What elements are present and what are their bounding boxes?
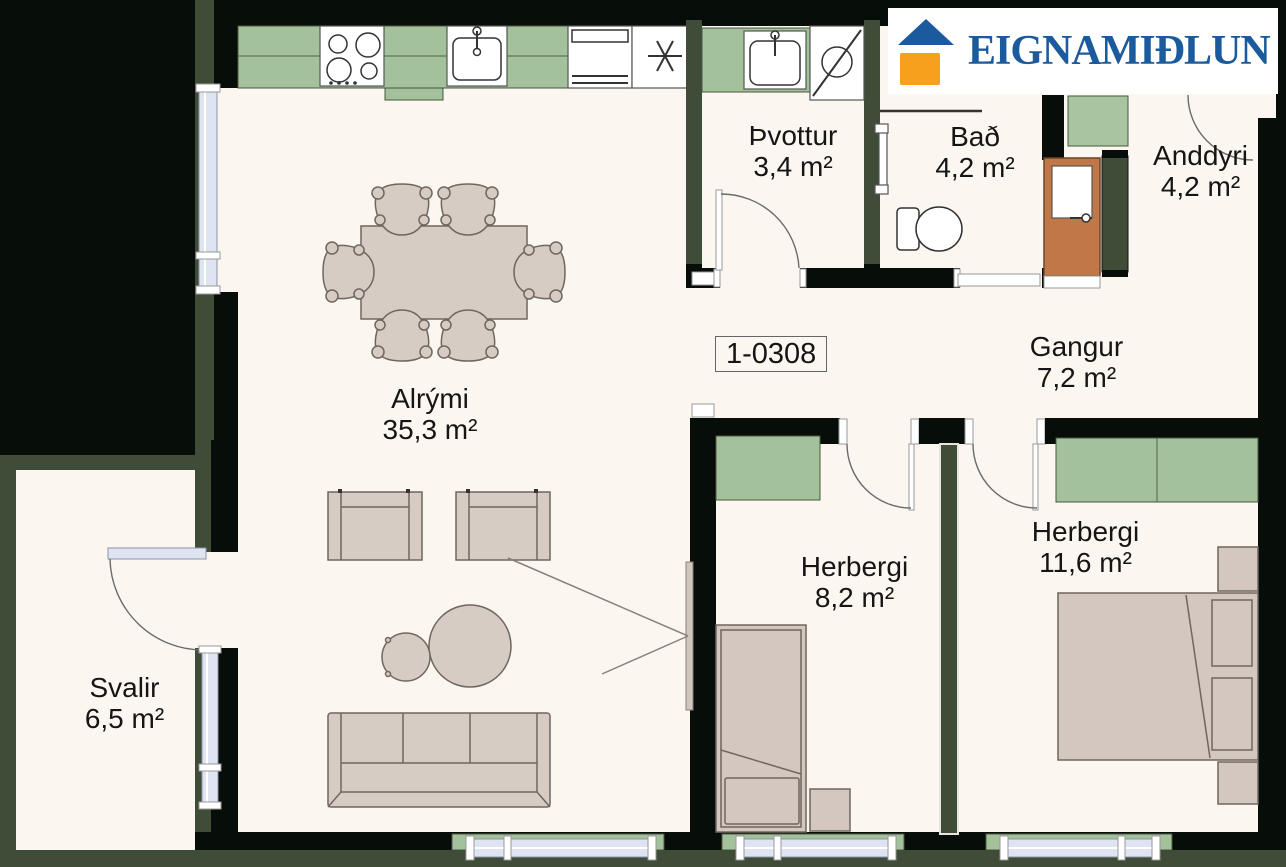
house-icon (898, 17, 956, 85)
sofa (328, 713, 550, 807)
room-label-gangur: Gangur 7,2 m² (984, 331, 1169, 394)
room-name: Svalir (32, 672, 217, 703)
pillow (1212, 678, 1252, 750)
bed-single (716, 625, 806, 832)
bed-double (1058, 593, 1258, 760)
brand-name: EIGNAMIÐLUN (968, 27, 1270, 75)
room-area: 11,6 m² (983, 547, 1188, 578)
room-name: Þvottur (703, 120, 883, 151)
window-left (196, 84, 220, 294)
nightstand (810, 789, 850, 831)
floor-plan-drawing (0, 0, 1286, 867)
bedroom-large-door (973, 444, 1038, 510)
oven (568, 26, 632, 88)
bathroom-walls (864, 268, 1040, 288)
toilet (897, 207, 962, 251)
room-label-herbergi-small: Herbergi 8,2 m² (752, 551, 957, 614)
room-label-svalir: Svalir 6,5 m² (32, 672, 217, 735)
tv-viewing-lines (508, 558, 688, 674)
pillow (1212, 600, 1252, 666)
room-name: Anddyri (1108, 140, 1286, 171)
laundry-door (716, 190, 799, 270)
room-area: 6,5 m² (32, 703, 217, 734)
coffee-table-large (429, 605, 511, 687)
armchair (456, 489, 550, 560)
floor-plan: Alrými 35,3 m² Þvottur 3,4 m² Bað 4,2 m²… (0, 0, 1286, 867)
unit-number-label: 1-0308 (715, 336, 827, 372)
window-bedroom-large (1000, 836, 1160, 860)
room-name: Herbergi (752, 551, 957, 582)
kitchen-sink (447, 26, 507, 86)
stove (320, 26, 384, 86)
balcony-railing (0, 455, 196, 867)
window-bedroom-small (736, 836, 896, 860)
doormat (1068, 96, 1128, 146)
logo: EIGNAMIÐLUN (888, 8, 1278, 94)
bedroom-small-door (847, 444, 914, 510)
nightstand (1218, 762, 1258, 804)
shower (810, 26, 864, 100)
room-name: Bað (885, 121, 1065, 152)
pillow (725, 778, 799, 824)
room-name: Herbergi (983, 516, 1188, 547)
house-base-icon (900, 53, 940, 85)
room-area: 4,2 m² (1108, 171, 1286, 202)
dining-table (361, 226, 527, 319)
balcony-door (108, 548, 206, 650)
room-area: 7,2 m² (984, 362, 1169, 393)
house-roof-icon (898, 19, 954, 45)
room-label-alrymi: Alrými 35,3 m² (310, 383, 550, 446)
room-label-thvottur: Þvottur 3,4 m² (703, 120, 883, 183)
window-living (466, 836, 656, 860)
room-area: 3,4 m² (703, 151, 883, 182)
room-name: Alrými (310, 383, 550, 414)
nightstand (1218, 547, 1258, 591)
coffee-table-small (382, 633, 430, 681)
wardrobe-large (1056, 438, 1258, 502)
laundry-sink (744, 31, 806, 89)
room-name: Gangur (984, 331, 1169, 362)
room-label-anddyri: Anddyri 4,2 m² (1108, 140, 1286, 203)
room-label-bad: Bað 4,2 m² (885, 121, 1065, 184)
armchair (328, 489, 422, 560)
wardrobe-small (716, 436, 820, 500)
room-area: 4,2 m² (885, 152, 1065, 183)
room-label-herbergi-large: Herbergi 11,6 m² (983, 516, 1188, 579)
room-area: 8,2 m² (752, 582, 957, 613)
outside-mass (0, 0, 195, 458)
room-area: 35,3 m² (310, 414, 550, 445)
